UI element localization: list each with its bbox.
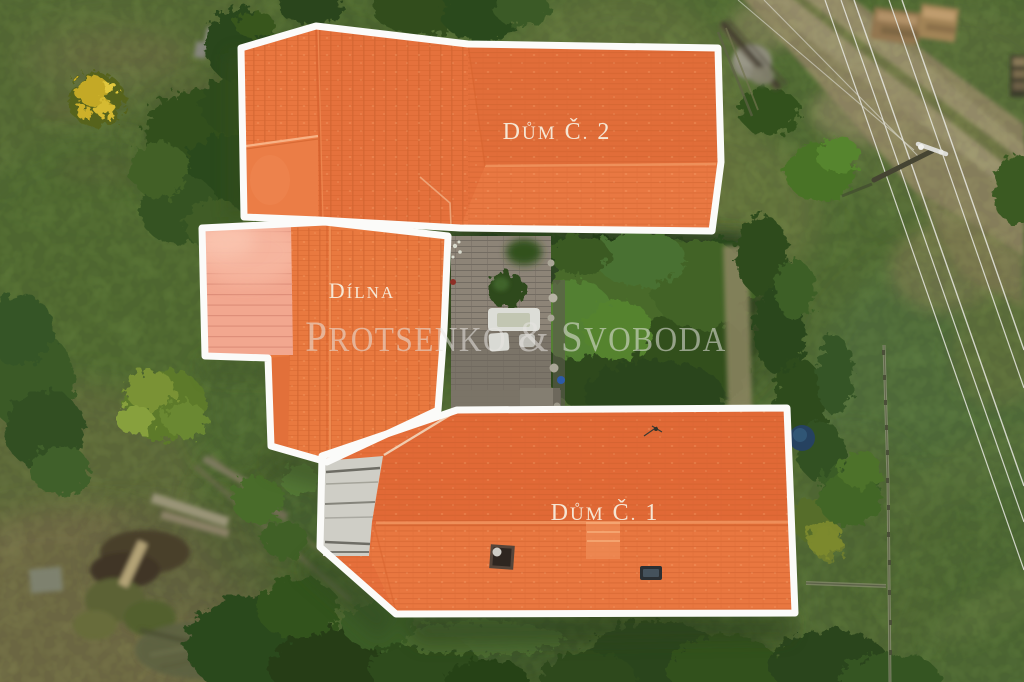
svg-text:DŮM Č. 2: DŮM Č. 2 <box>503 118 612 145</box>
svg-text:DŮM Č. 1: DŮM Č. 1 <box>551 499 660 526</box>
